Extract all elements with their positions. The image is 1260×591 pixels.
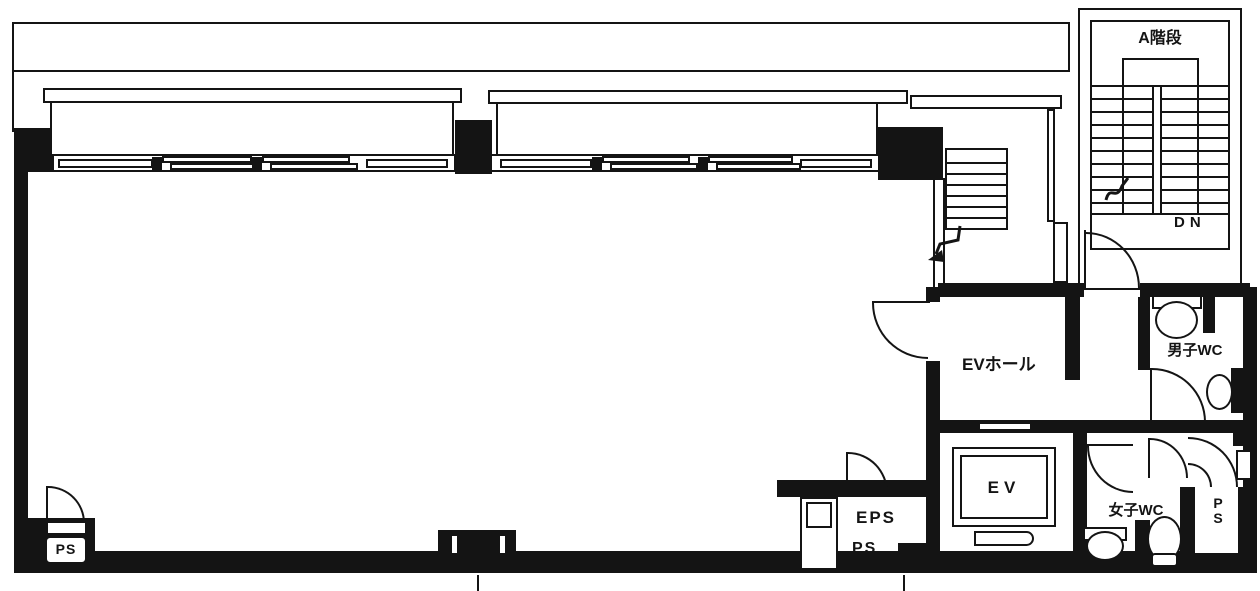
elevator-door (978, 422, 1032, 431)
door-threshold (46, 521, 87, 535)
dimension-tick (903, 575, 905, 591)
window-mullion (252, 157, 262, 170)
wall (938, 283, 1084, 297)
pillar-slit (500, 536, 505, 553)
corridor-wall (1053, 222, 1068, 283)
wall (1065, 297, 1080, 380)
bay-window-3-frame (910, 95, 1062, 109)
window-mullion (698, 157, 708, 170)
stair-a-landing-line (1092, 213, 1230, 215)
wall (1233, 420, 1243, 446)
corridor-wall (1047, 109, 1055, 222)
eps-label: EPS (856, 508, 896, 528)
wall (1180, 487, 1195, 553)
balcony-inner-line (14, 70, 1070, 72)
floor-plan: A階段 DN EVホール EV 男子WC 女子WC (0, 0, 1260, 591)
urinal-icon (1206, 374, 1233, 410)
ps-right-label: PS (1210, 496, 1226, 525)
duct-box-inner (806, 502, 832, 528)
stair-a-newel-wall (1152, 85, 1162, 215)
stair-a-treads-right (1162, 85, 1230, 215)
window-mullion (152, 157, 162, 170)
wall (1138, 297, 1150, 370)
door-opening (926, 302, 940, 361)
pillar-slit (452, 536, 457, 553)
wall (1073, 433, 1087, 573)
window-sash (270, 163, 358, 170)
door-arc-mens-wc (1152, 368, 1206, 422)
ev-hall-label: EVホール (962, 350, 1036, 375)
wall (898, 543, 932, 573)
window-sash (708, 156, 793, 163)
down-arrow-icon (920, 224, 964, 266)
balcony-outer-line (12, 22, 1070, 24)
window-sash (162, 156, 252, 163)
window-sash (366, 159, 448, 168)
bay-window-1-side-right (452, 101, 454, 157)
window-sash (262, 156, 350, 163)
bay-window-2-side-left (496, 102, 498, 157)
mens-wc-label: 男子WC (1150, 339, 1240, 360)
stair-a-label: A階段 (1100, 24, 1220, 48)
pillar (455, 120, 492, 174)
elevator-counterweight (974, 531, 1034, 546)
sink-icon (1086, 531, 1124, 561)
window-mullion (592, 157, 602, 170)
dimension-tick (477, 575, 479, 591)
door-arc-eps (848, 452, 888, 493)
window-sash (500, 159, 592, 168)
ps-center-label: PS (852, 540, 877, 558)
window-sash (58, 159, 153, 168)
sink-icon (1155, 301, 1198, 339)
pillar (878, 127, 943, 180)
door-arc-womens-wc (1087, 446, 1133, 493)
dn-label: DN (1174, 214, 1206, 231)
door-arc-ev-hall (872, 303, 928, 359)
window-sash (170, 163, 258, 170)
ps-left-label: PS (44, 541, 88, 557)
bay-window-2-frame (488, 90, 908, 104)
door-arc-ps-left (48, 486, 85, 523)
bay-window-1-frame (43, 88, 462, 103)
elevator-label: EV (952, 478, 1056, 498)
balcony-left-edge (12, 22, 14, 132)
window-sash (800, 159, 872, 168)
wall-bottom (14, 551, 1257, 573)
wall (1231, 368, 1245, 413)
window-sash (610, 163, 698, 170)
door-arc-wc-stall (1150, 438, 1188, 478)
stair-break-mark-icon (1102, 176, 1132, 204)
toilet-base (1151, 553, 1178, 567)
wall-left (14, 128, 28, 573)
balcony-right-edge (1068, 22, 1070, 72)
duct-end (1236, 450, 1252, 480)
wall (1238, 487, 1257, 553)
window-sash (602, 156, 690, 163)
stair-a-stringer (1122, 58, 1199, 60)
internal-stair-treads (947, 162, 1006, 228)
wall (1203, 297, 1215, 333)
window-sash (716, 163, 801, 170)
